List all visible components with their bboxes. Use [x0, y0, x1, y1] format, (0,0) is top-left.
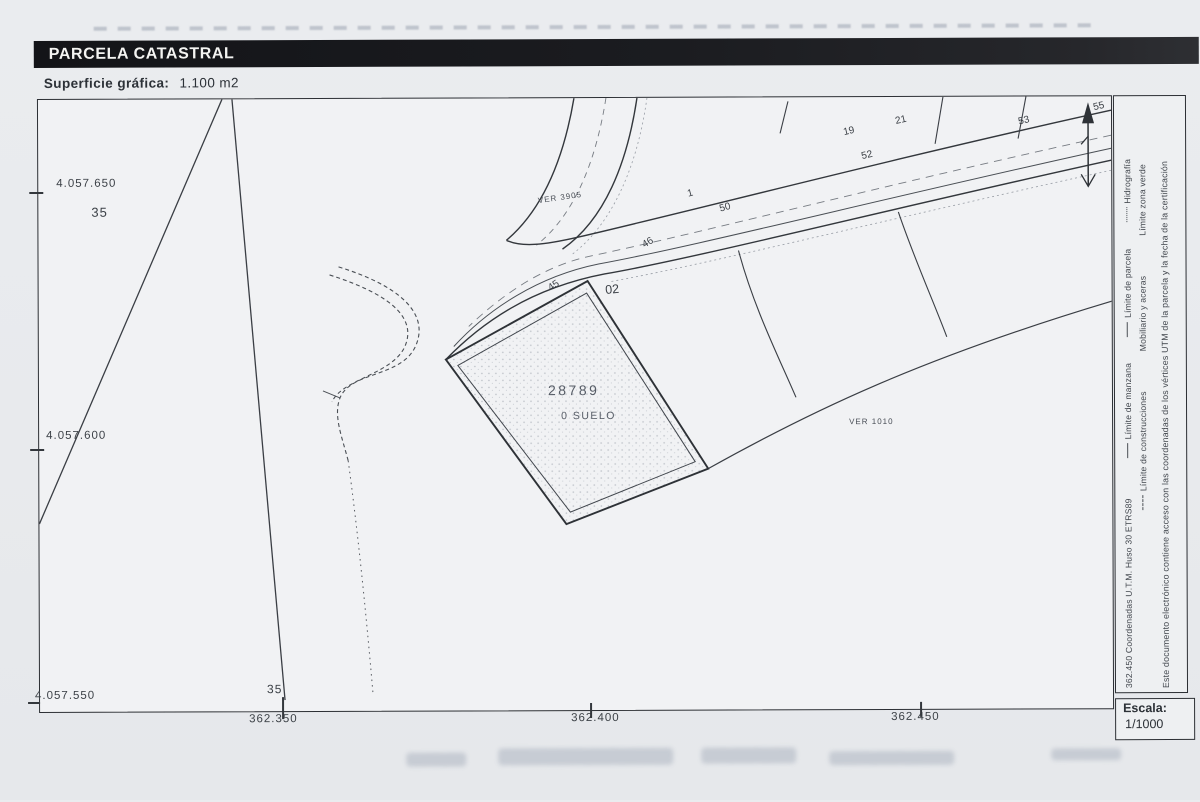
scanned-page: PARCELA CATASTRAL Superficie gráfica: 1.… [0, 0, 1200, 802]
grid-tick [30, 449, 44, 451]
scale-label: Escala: [1123, 701, 1194, 717]
hydrography-dotted [348, 461, 373, 694]
main-road-upper-edge [506, 110, 1111, 244]
frontage-number-45: 45 [546, 278, 562, 294]
map-legend-sidebar: 362.450 Coordenadas U.T.M. Huso 30 ETRS8… [1113, 95, 1188, 693]
scan-artifact-top [94, 23, 1099, 31]
utm-y-label-1: 4.057.650 [56, 178, 116, 190]
divider-above-1 [780, 101, 788, 133]
parcela-line-symbol [1127, 322, 1128, 337]
utm-y-label-2: 4.057.600 [46, 430, 106, 442]
scale-box: Escala: 1/1000 [1115, 698, 1195, 740]
boundary-line-left-diagonal [38, 99, 223, 524]
utm-x-label-2: 362.400 [571, 712, 620, 724]
legend-hidrografia: Hidrografía [1122, 159, 1132, 204]
back-boundary-curve [708, 301, 1113, 468]
grid-tick [28, 702, 40, 704]
legend-column-middle: Límite de construcciones Mobiliario y ac… [1135, 100, 1150, 688]
grid-tick [590, 703, 592, 718]
surface-label: Superficie gráfica: [44, 76, 169, 91]
utm-coords-note: 362.450 Coordenadas U.T.M. Huso 30 ETRS8… [1123, 498, 1134, 688]
grid-tick [29, 192, 43, 194]
section-title-bar: PARCELA CATASTRAL [34, 37, 1199, 68]
scan-artifact [829, 751, 954, 765]
frontage-number-19: 19 [842, 125, 856, 138]
surface-value: 1.100 m2 [179, 75, 239, 90]
parcel-use-label: 0 SUELO [561, 410, 616, 422]
grid-tick [282, 697, 284, 719]
scan-artifact [701, 747, 796, 763]
grid-tick [920, 702, 922, 717]
scan-artifact [406, 752, 466, 766]
hydrography-spur [323, 391, 340, 398]
main-road-sidewalk [608, 170, 1111, 282]
top-road-centerline [536, 98, 607, 245]
certification-note: Este documento electrónico contiene acce… [1159, 161, 1171, 688]
boundary-line-block35 [232, 99, 285, 700]
legend-mobiliario: Mobiliario y aceras [1137, 276, 1147, 351]
divider-below-2 [898, 212, 946, 337]
construcciones-line-symbol [1142, 495, 1143, 510]
legend-limite-construcciones: Límite de construcciones [1137, 391, 1147, 491]
certification-note-column: Este documento electrónico contiene acce… [1157, 100, 1172, 688]
top-road-left-edge [506, 98, 574, 240]
frontage-number-52: 52 [860, 149, 874, 162]
parcel-number-02: 02 [605, 282, 620, 297]
utm-x-label-1: 362.350 [249, 713, 298, 725]
divider-below-1 [738, 250, 796, 397]
cadastral-map: VER 3905 VER 1010 28789 0 SUELO 19 21 52… [37, 95, 1114, 713]
manzana-line-symbol [1127, 443, 1128, 458]
section-title: PARCELA CATASTRAL [34, 45, 235, 64]
ver-label-right: VER 1010 [849, 417, 893, 426]
scale-value: 1/1000 [1123, 717, 1194, 733]
scan-artifact [498, 748, 673, 766]
utm-y-label-3: 4.057.550 [35, 690, 95, 702]
frontage-number-53: 53 [1017, 114, 1031, 127]
legend-limite-parcela: Límite de parcela [1122, 249, 1132, 318]
frontage-number-1: 1 [686, 187, 695, 199]
legend-limite-manzana: Límite de manzana [1122, 363, 1132, 440]
hydrography-line [337, 267, 420, 461]
frontage-number-46: 46 [640, 235, 656, 250]
hidrografia-line-symbol [1126, 208, 1127, 223]
legend-column-inner: 362.450 Coordenadas U.T.M. Huso 30 ETRS8… [1120, 100, 1135, 688]
surface-area-line: Superficie gráfica: 1.100 m2 [44, 75, 239, 91]
frontage-number-50: 50 [718, 201, 732, 215]
block-number-left: 35 [91, 205, 108, 220]
parcel-number-label: 28789 [548, 382, 599, 398]
map-drawing: VER 3905 VER 1010 28789 0 SUELO 19 21 52… [38, 96, 1113, 712]
divider-above-2 [935, 97, 943, 144]
scan-artifact [1051, 748, 1121, 760]
legend-zona-verde: Límite zona verde [1137, 164, 1147, 236]
block-number-bottom: 35 [267, 682, 282, 696]
frontage-number-21: 21 [894, 114, 908, 127]
utm-x-label-3: 362.450 [891, 711, 940, 723]
